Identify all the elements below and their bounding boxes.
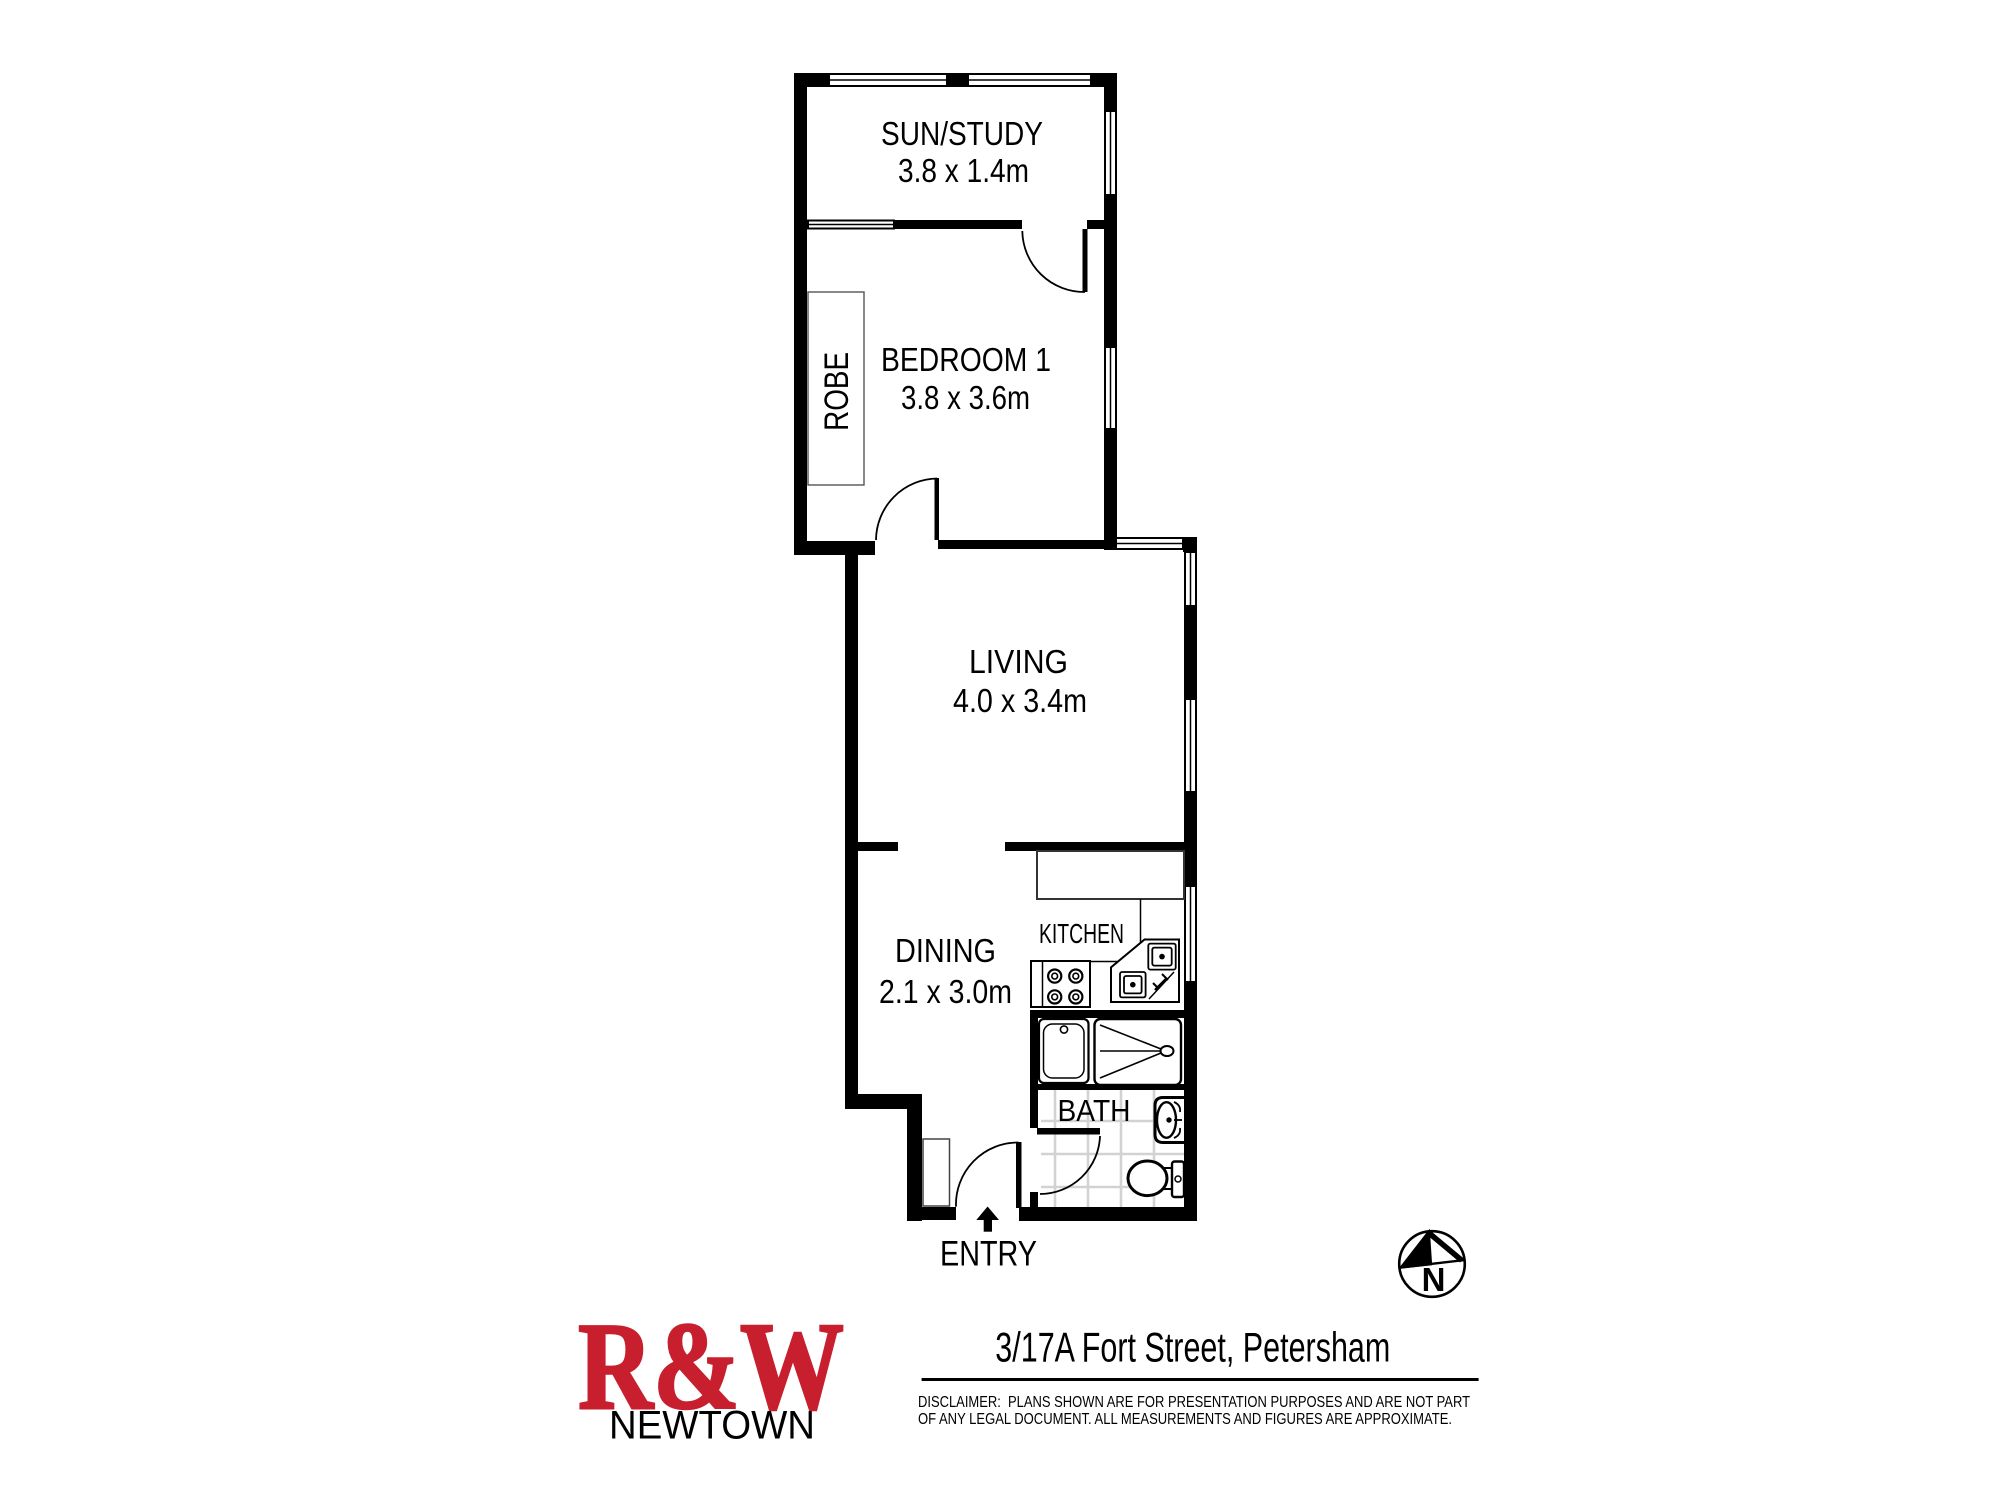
svg-text:NEWTOWN: NEWTOWN bbox=[609, 1404, 815, 1448]
svg-text:KITCHEN: KITCHEN bbox=[1039, 918, 1124, 949]
svg-text:3.8 x 1.4m: 3.8 x 1.4m bbox=[898, 152, 1029, 189]
svg-text:LIVING: LIVING bbox=[969, 643, 1068, 680]
svg-text:BEDROOM 1: BEDROOM 1 bbox=[881, 341, 1051, 378]
svg-text:3.8 x 3.6m: 3.8 x 3.6m bbox=[901, 379, 1030, 416]
svg-text:DISCLAIMER: PLANS SHOWN ARE F: DISCLAIMER: PLANS SHOWN ARE FOR PRESENTA… bbox=[918, 1394, 1470, 1411]
svg-text:BATH: BATH bbox=[1058, 1093, 1131, 1128]
svg-text:DINING: DINING bbox=[895, 932, 996, 969]
svg-text:4.0 x 3.4m: 4.0 x 3.4m bbox=[953, 682, 1087, 719]
svg-text:ROBE: ROBE bbox=[818, 352, 856, 431]
svg-text:2.1 x 3.0m: 2.1 x 3.0m bbox=[879, 973, 1012, 1010]
svg-text:ENTRY: ENTRY bbox=[940, 1234, 1037, 1274]
svg-text:N: N bbox=[1422, 1261, 1446, 1298]
svg-text:SUN/STUDY: SUN/STUDY bbox=[881, 115, 1043, 152]
svg-text:3/17A Fort Street, Petersham: 3/17A Fort Street, Petersham bbox=[995, 1324, 1390, 1371]
svg-text:OF ANY LEGAL DOCUMENT. ALL MEA: OF ANY LEGAL DOCUMENT. ALL MEASUREMENTS … bbox=[918, 1411, 1452, 1428]
